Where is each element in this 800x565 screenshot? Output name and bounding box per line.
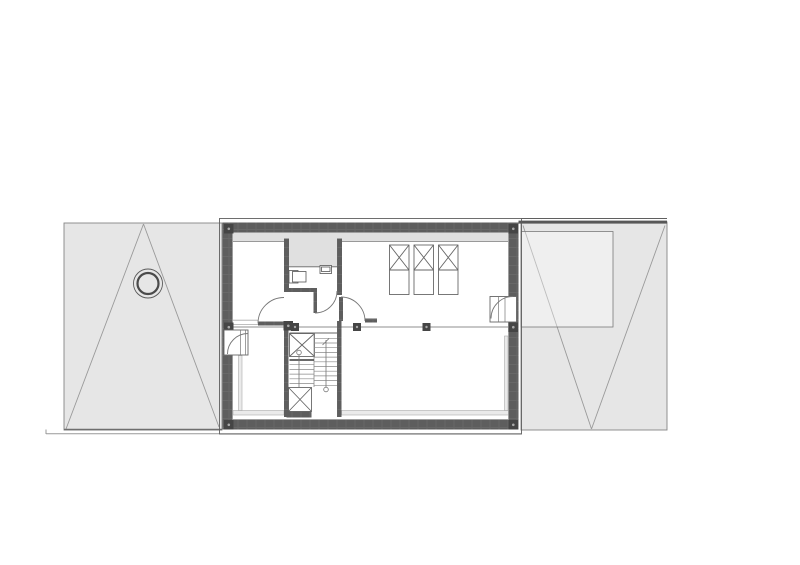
mid-wall-post [509,323,519,333]
top-eave-zone [233,233,508,267]
hall-door-right [339,297,377,323]
bathroom-right-wall [337,239,342,296]
skylight [390,245,410,295]
bathroom-bottom-wall [284,288,317,292]
corner-post [509,224,519,234]
stairwell [284,321,342,418]
right-wall-door [490,297,517,323]
wc-icon [289,271,306,284]
right-roof [519,221,668,430]
exterior-walls [223,223,519,430]
bathroom-left-wall [284,239,289,293]
skylights [390,245,459,295]
hall-door-left [258,298,284,326]
stair-shaft-left-wall [284,330,289,417]
bathroom-eave-zone [289,233,337,267]
door-leaf [258,322,284,326]
stair-flight-up [314,338,337,385]
right-roof-ridge-edge [519,221,668,224]
door-leaf [314,291,318,313]
interior-post [353,323,361,331]
skylight [439,245,459,295]
skylight [414,245,434,295]
eave-ledges [233,336,509,415]
corner-post [224,420,234,430]
left-roof [64,223,222,430]
interior-post [291,323,299,331]
left-roof-plane [64,223,222,430]
left-knee-wall [233,320,258,324]
stair-flight-down [290,365,315,384]
interior-post [423,323,431,331]
corner-post [509,420,519,430]
corner-post [224,224,234,234]
door-leaf [339,297,343,321]
dormer-outline [521,232,613,328]
left-wall-window [224,330,248,355]
bottom-wall [223,420,519,430]
top-wall [223,223,519,233]
washbasin-icon [320,266,332,274]
inner-wall-face-line [233,233,509,420]
knee-wall-stub [365,319,377,323]
floor-plan-drawing [0,0,800,565]
floorplan-canvas [0,0,800,565]
stair-shaft-bottom-wall [287,412,312,418]
stair-shaft-right-wall [337,321,342,417]
bathroom-door [314,291,338,313]
